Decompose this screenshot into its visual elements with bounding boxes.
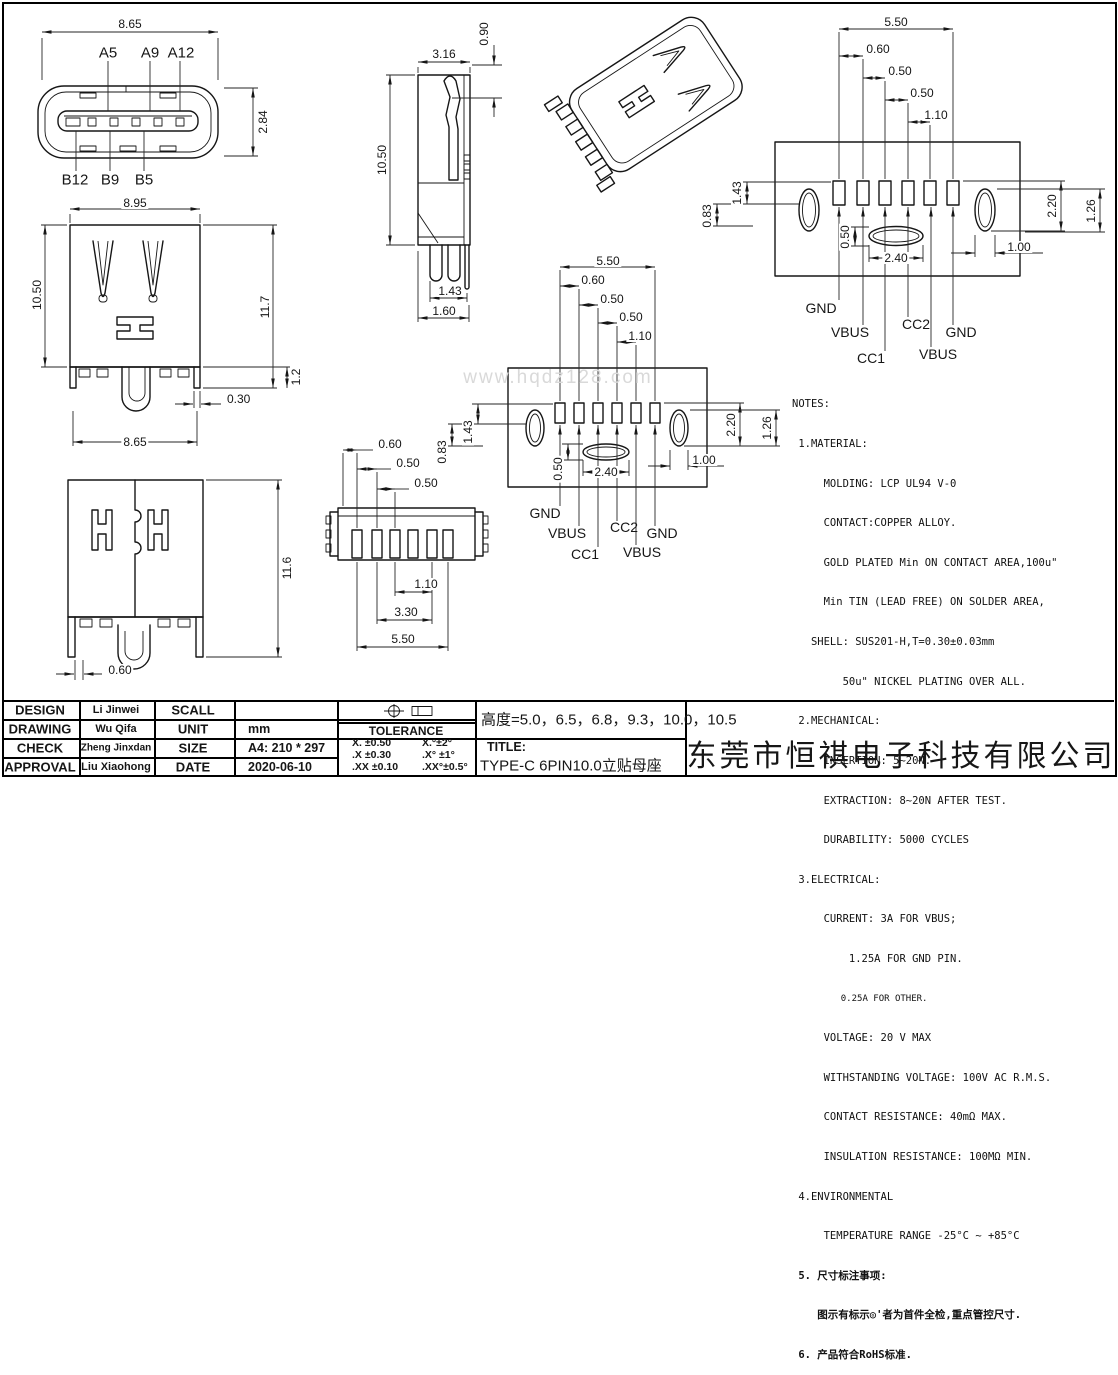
pad-label-vbus-1: VBUS [831,325,869,339]
cell-scall-label: SCALL [171,703,214,718]
tolerance-row2-right: .X° ±1° [422,749,455,761]
note-line: DURABILITY: 5000 CYCLES [792,834,1116,847]
watermark: www.hqdz128.com [463,367,652,389]
dim-fp2-right-a: 2.20 [725,411,737,438]
dim-bottom-g3: 5.50 [389,633,416,645]
dim-fp-p2: 0.50 [886,65,913,77]
dim-fp2-mid-b: 2.40 [592,466,619,478]
dim-rear-bottom-width: 8.65 [121,436,148,448]
titleblock-row-line-2 [4,738,685,740]
cell-unit-value: mm [248,722,270,736]
dim-fp2-p2: 0.50 [598,293,625,305]
pad-label-gnd-2: GND [945,325,976,339]
note-line: SHELL: SUS201-H,T=0.30±0.03mm [792,636,1116,649]
pin-label-a5: A5 [99,46,117,61]
titleblock-row-line-1 [4,719,475,721]
dim-fp-left-b: 1.43 [731,179,743,206]
pad2-label-vbus-1: VBUS [548,526,586,540]
view-rear: 8.95 10.50 11.7 1.2 0.30 8.65 [25,195,325,470]
engineering-drawing-sheet: { "watermark": "www.hqdz128.com", "compa… [0,0,1118,778]
cell-approval-label: APPROVAL [4,760,75,775]
note-line: Min TIN (LEAD FREE) ON SOLDER AREA, [792,596,1116,609]
titleblock-col-line-3 [234,700,236,776]
dim-fp-p1: 0.60 [864,43,891,55]
pad2-label-gnd-1: GND [529,506,560,520]
pad-label-gnd-1: GND [805,301,836,315]
cell-design-name: Li Jinwei [93,704,139,716]
cell-approval-name: Liu Xiaohong [81,761,151,773]
note-line: 1.25A FOR GND PIN. [792,953,1116,966]
dim-bottom-p3: 0.50 [412,477,439,489]
dim-bottom-g1: 1.10 [412,578,439,590]
tolerance-row1-left: X. ±0.50 [352,737,391,749]
note-line: 1.MATERIAL: [792,438,1116,451]
dim-fp-p3: 0.50 [908,87,935,99]
dim-bottom-p2: 0.50 [394,457,421,469]
view-bottom: 0.60 0.50 0.50 1.10 3.30 5.50 [293,436,528,671]
projection-symbol-icon [376,703,438,719]
dim-bottom-g2: 3.30 [392,606,419,618]
pin-label-b12: B12 [62,173,89,188]
dim-fp2-mid-a: 0.50 [552,455,564,482]
cell-date-value: 2020-06-10 [248,760,312,774]
dim-fp2-right-b: 1.26 [761,414,773,441]
cell-design-label: DESIGN [15,703,65,718]
note-line: CONTACT:COPPER ALLOY. [792,517,1116,530]
dim-shell-height: 2.84 [257,108,269,135]
tolerance-row1-right: X.°±2° [422,737,452,749]
cell-drawing-name: Wu Qifa [95,723,136,735]
dim-fp-mid-a: 0.50 [839,223,851,250]
height-variants-note: 高度=5.0，6.5，6.8，9.3，10.0，10.5 [481,709,737,730]
dim-bottom-p1: 0.60 [376,438,403,450]
pin-label-b5: B5 [135,173,153,188]
note-line: 2.MECHANICAL: [792,715,1116,728]
note-line: 0.25A FOR OTHER. [792,993,1116,1006]
pad2-label-cc1: CC1 [571,547,599,561]
dim-fp2-p4: 1.10 [626,330,653,342]
cell-size-value: A4: 210 * 297 [248,741,325,755]
note-line: EXTRACTION: 8~20N AFTER TEST. [792,795,1116,808]
dim-rear-total-height: 11.7 [259,294,271,320]
cell-drawing-label: DRAWING [9,722,72,737]
dim-fp2-right-c: 1.00 [690,454,717,466]
dim-side-offset: 0.90 [478,20,490,47]
view-mating-face: 8.65 2.84 A5 A9 A12 B12 B9 B5 [28,8,288,200]
pad-label-vbus-2: VBUS [919,347,957,361]
dim-rear-height: 10.50 [31,278,43,312]
note-line: 50u" NICKEL PLATING OVER ALL. [792,676,1116,689]
note-line: VOLTAGE: 20 V MAX [792,1032,1116,1045]
company-name: 东莞市恒祺电子科技有限公司 [687,731,1116,775]
dim-fp2-p1: 0.60 [579,274,606,286]
note-line: CURRENT: 3A FOR VBUS; [792,913,1116,926]
pin-label-b9: B9 [101,173,119,188]
note-line: GOLD PLATED Min ON CONTACT AREA,100u" [792,557,1116,570]
dim-fp-mid-b: 2.40 [882,252,909,264]
dim-fp2-p3: 0.50 [617,311,644,323]
note-line: 6. 产品符合RoHS标准. [792,1349,1116,1362]
note-line: TEMPERATURE RANGE -25°C ~ +85°C [792,1230,1116,1243]
drawing-title-value: TYPE-C 6PIN10.0立贴母座 [480,755,662,776]
note-line: MOLDING: LCP UL94 V-0 [792,478,1116,491]
dim-fp2-span: 5.50 [594,255,621,267]
drawing-title-label: TITLE: [487,740,526,754]
dim-fp-right-a: 2.20 [1046,192,1058,219]
front-tall-linework [28,452,318,702]
dim-fp-right-c: 1.00 [1005,241,1032,253]
pin-label-a12: A12 [168,46,195,61]
notes-panel: NOTES: 1.MATERIAL: MOLDING: LCP UL94 V-0… [792,372,1116,1375]
cell-check-name: Zheng Jinxdan [81,743,152,754]
note-line: NOTES: [792,398,1116,411]
cell-date-label: DATE [176,760,210,775]
tolerance-title: TOLERANCE [369,724,443,738]
dim-fp-span: 5.50 [882,16,909,28]
pad2-label-vbus-2: VBUS [623,545,661,559]
note-line: CONTACT RESISTANCE: 40mΩ MAX. [792,1111,1116,1124]
pad-label-cc1: CC1 [857,351,885,365]
rear-linework [25,195,325,470]
tolerance-row3-right: .XX°±0.5° [422,761,468,773]
dim-side-height: 10.50 [376,143,388,177]
tolerance-row2-left: .X ±0.30 [352,749,391,761]
titleblock-col-line-2 [154,700,156,776]
pad-label-cc2: CC2 [902,317,930,331]
dim-rear-offset: 0.30 [225,393,252,405]
dim-front2-pin: 0.60 [106,664,133,676]
tolerance-row3-left: .XX ±0.10 [352,761,398,773]
dim-rear-leg: 1.2 [290,367,302,388]
note-line: 图示有标示◎'者为首件全检,重点管控尺寸. [792,1309,1116,1322]
pin-label-a9: A9 [141,46,159,61]
pad2-label-gnd-2: GND [646,526,677,540]
dim-front2-height: 11.6 [281,555,293,581]
dim-fp-right-b: 1.26 [1085,197,1097,224]
titleblock-col-line-4 [337,700,339,776]
pad2-label-cc2: CC2 [610,520,638,534]
note-line: 5. 尺寸标注事项: [792,1270,1116,1283]
view-front-tall: 11.6 0.60 [28,452,318,702]
dim-rear-width: 8.95 [121,197,148,209]
dim-shell-width: 8.65 [116,18,143,30]
dim-fp-p4: 1.10 [922,109,949,121]
note-line: 4.ENVIRONMENTAL [792,1191,1116,1204]
cell-size-label: SIZE [179,741,208,756]
dim-fp-left-a: 0.83 [701,202,713,229]
cell-unit-label: UNIT [178,722,208,737]
note-line: WITHSTANDING VOLTAGE: 100V AC R.M.S. [792,1072,1116,1085]
cell-check-label: CHECK [17,741,63,756]
note-line: 3.ELECTRICAL: [792,874,1116,887]
dim-side-depth: 3.16 [430,48,457,60]
note-line: INSULATION RESISTANCE: 100MΩ MIN. [792,1151,1116,1164]
titleblock-col-line-5 [475,700,477,776]
